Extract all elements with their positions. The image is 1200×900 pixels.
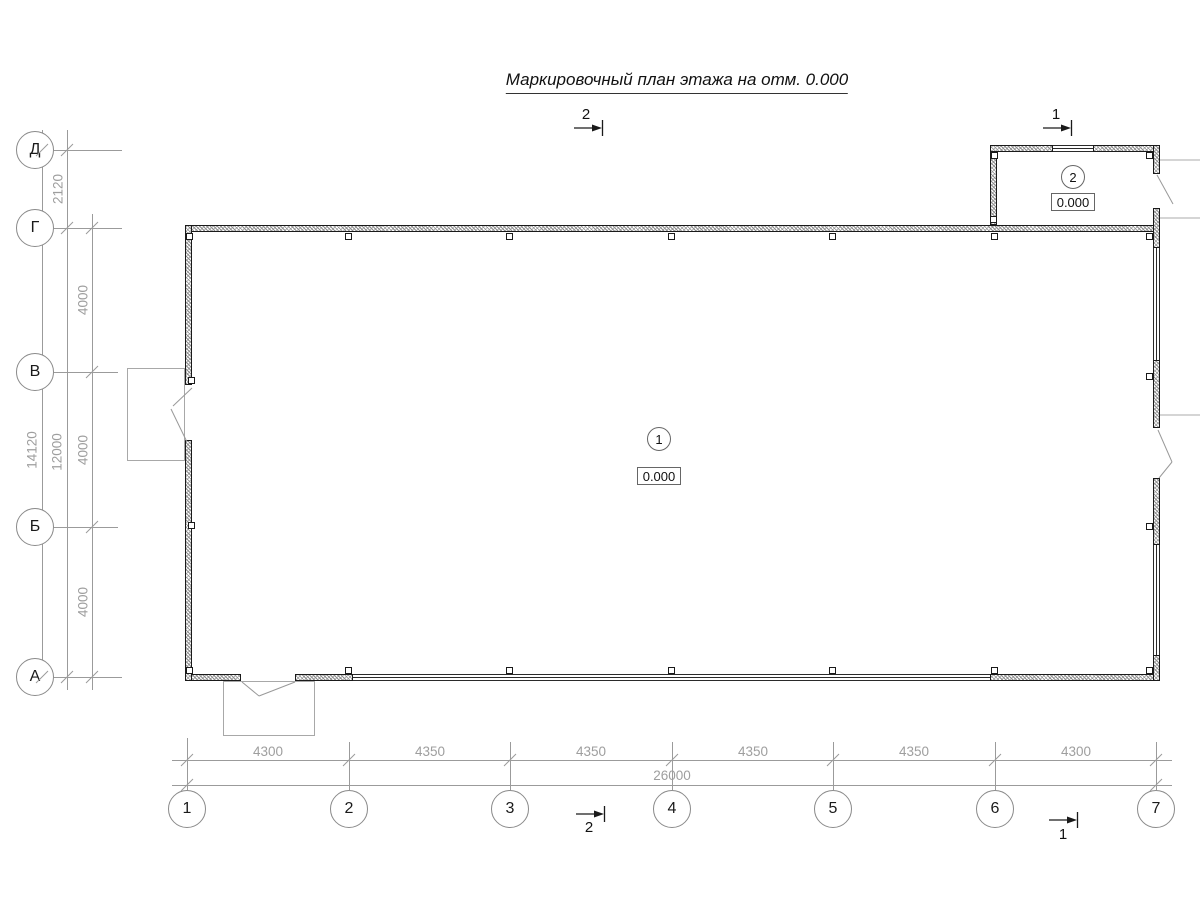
- wall-segment: [1153, 208, 1160, 248]
- wall-segment: [1093, 145, 1160, 152]
- wall-segment: [1153, 145, 1160, 174]
- room-number: 2: [1069, 170, 1076, 185]
- column-marker: [506, 233, 513, 240]
- grid-axis-col-circle: 5: [814, 790, 852, 828]
- window-band: [1153, 248, 1160, 360]
- porch-outline: [223, 681, 315, 736]
- wall-segment: [185, 440, 192, 681]
- grid-axis-row-circle: Г: [16, 209, 54, 247]
- column-marker: [1146, 152, 1153, 159]
- drawing-title: Маркировочный план этажа на отм. 0.000: [506, 70, 848, 94]
- section-arrow-head: [594, 811, 604, 818]
- column-marker: [1146, 233, 1153, 240]
- section-arrow-head: [592, 125, 602, 132]
- column-marker: [186, 667, 193, 674]
- axis-ext-line: [995, 742, 996, 790]
- axis-label: А: [30, 668, 41, 686]
- wall-segment: [185, 674, 241, 681]
- door-swing-line: [1157, 175, 1173, 204]
- column-marker: [991, 233, 998, 240]
- dim-line-left-subtotal: [67, 130, 68, 690]
- grid-axis-col-circle: 1: [168, 790, 206, 828]
- wall-segment: [185, 225, 1160, 232]
- elevation-box: 0.000: [637, 467, 681, 485]
- grid-row-line: [54, 372, 118, 373]
- floor-plan-canvas: Маркировочный план этажа на отм. 0.000 Д…: [0, 0, 1200, 900]
- section-mark-label: 1: [1052, 106, 1060, 123]
- porch-outline: [127, 368, 185, 461]
- axis-ext-line: [187, 738, 188, 790]
- door-swing-line: [1159, 462, 1172, 478]
- column-marker: [506, 667, 513, 674]
- axis-label: 4: [668, 800, 677, 818]
- window-band: [353, 674, 990, 681]
- axis-ext-line: [510, 742, 511, 790]
- axis-label: 2: [345, 800, 354, 818]
- dimension-label: 12000: [50, 433, 65, 471]
- grid-row-line: [54, 150, 122, 151]
- section-mark-label: 2: [585, 819, 593, 836]
- dimension-label: 4350: [899, 744, 929, 759]
- column-marker: [1146, 523, 1153, 530]
- section-mark-label: 1: [1059, 826, 1067, 843]
- dimension-label: 4300: [1061, 744, 1091, 759]
- door-swing-line: [1158, 430, 1172, 462]
- dimension-label: 4300: [253, 744, 283, 759]
- grid-row-line: [54, 228, 122, 229]
- wall-segment: [185, 225, 192, 385]
- axis-label: Г: [31, 219, 40, 237]
- column-marker: [668, 667, 675, 674]
- column-marker: [188, 522, 195, 529]
- axis-label: 7: [1152, 800, 1161, 818]
- room-tag-circle: 1: [647, 427, 671, 451]
- window-band: [1053, 145, 1093, 152]
- wall-segment: [990, 674, 1160, 681]
- window-band: [1153, 545, 1160, 655]
- column-marker: [345, 667, 352, 674]
- column-marker: [1146, 667, 1153, 674]
- grid-axis-row-circle: В: [16, 353, 54, 391]
- column-marker: [188, 377, 195, 384]
- column-marker: [1146, 373, 1153, 380]
- column-marker: [990, 216, 997, 223]
- grid-axis-col-circle: 7: [1137, 790, 1175, 828]
- column-marker: [186, 233, 193, 240]
- room-number: 1: [655, 432, 662, 447]
- wall-segment: [1153, 655, 1160, 681]
- section-arrow-head: [1061, 125, 1071, 132]
- dimension-label: 26000: [653, 768, 691, 783]
- column-marker: [668, 233, 675, 240]
- axis-label: 3: [506, 800, 515, 818]
- room-tag-circle: 2: [1061, 165, 1085, 189]
- dimension-label: 4350: [576, 744, 606, 759]
- elevation-box: 0.000: [1051, 193, 1095, 211]
- grid-axis-col-circle: 2: [330, 790, 368, 828]
- grid-axis-col-circle: 6: [976, 790, 1014, 828]
- axis-label: 6: [991, 800, 1000, 818]
- dimension-label: 4000: [76, 435, 91, 465]
- axis-label: 1: [183, 800, 192, 818]
- column-marker: [829, 667, 836, 674]
- dimension-label: 4350: [738, 744, 768, 759]
- dimension-label: 14120: [25, 431, 40, 469]
- wall-segment: [990, 145, 1053, 152]
- section-arrow-head: [1067, 817, 1077, 824]
- axis-label: 5: [829, 800, 838, 818]
- grid-axis-col-circle: 4: [653, 790, 691, 828]
- grid-row-line: [54, 527, 118, 528]
- axis-ext-line: [349, 742, 350, 790]
- axis-ext-line: [833, 742, 834, 790]
- dimension-label: 4000: [76, 285, 91, 315]
- grid-axis-row-circle: А: [16, 658, 54, 696]
- column-marker: [991, 152, 998, 159]
- wall-segment: [1153, 360, 1160, 428]
- dimension-label: 4350: [415, 744, 445, 759]
- axis-label: Д: [30, 141, 41, 159]
- column-marker: [345, 233, 352, 240]
- grid-axis-col-circle: 3: [491, 790, 529, 828]
- axis-ext-line: [1156, 742, 1157, 790]
- grid-axis-row-circle: Д: [16, 131, 54, 169]
- wall-segment: [1153, 478, 1160, 545]
- dim-line-left-segments: [92, 214, 93, 690]
- axis-label: В: [30, 363, 41, 381]
- column-marker: [829, 233, 836, 240]
- dimension-label: 2120: [51, 174, 66, 204]
- wall-segment: [295, 674, 353, 681]
- section-mark-label: 2: [582, 106, 590, 123]
- column-marker: [991, 667, 998, 674]
- dimension-label: 4000: [76, 587, 91, 617]
- grid-row-line: [54, 677, 122, 678]
- axis-label: Б: [30, 518, 41, 536]
- grid-axis-row-circle: Б: [16, 508, 54, 546]
